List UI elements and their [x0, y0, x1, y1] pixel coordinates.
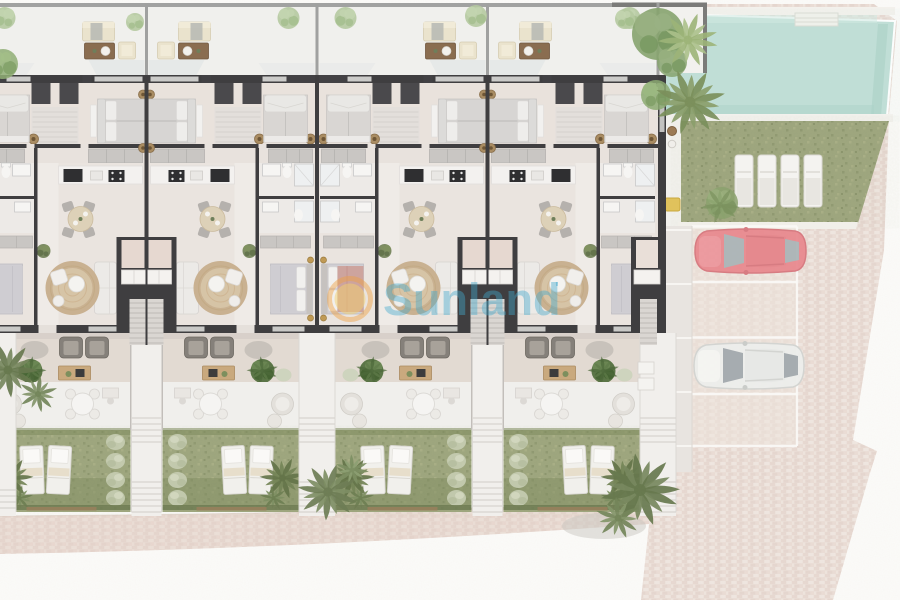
svg-text:': '	[555, 280, 559, 297]
svg-text:Sunland: Sunland	[383, 274, 561, 325]
